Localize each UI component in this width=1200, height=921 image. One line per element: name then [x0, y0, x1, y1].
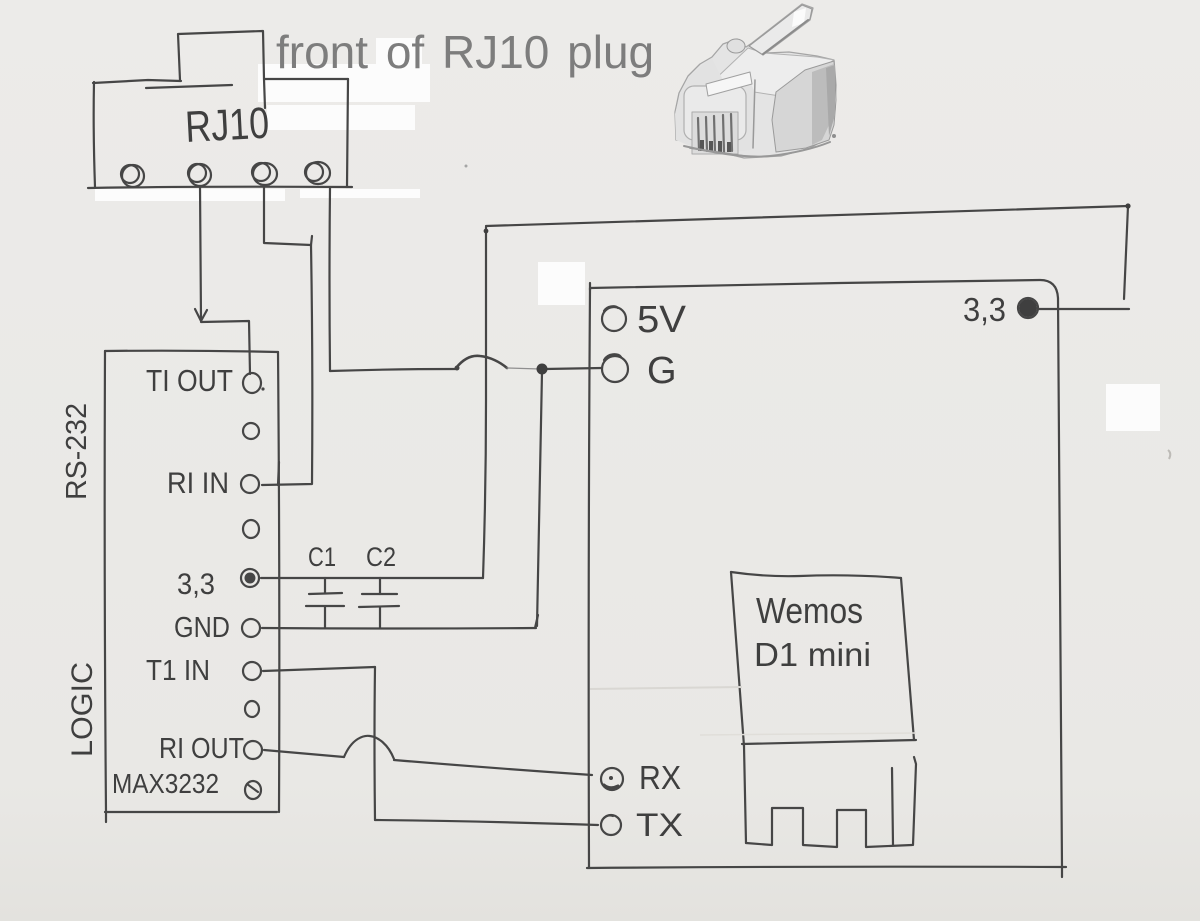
svg-text:RS-232: RS-232 [61, 403, 93, 500]
svg-text:C2: C2 [366, 542, 396, 572]
svg-text:TX: TX [636, 807, 683, 843]
svg-text:RJ10: RJ10 [184, 99, 270, 152]
svg-text:3,3: 3,3 [963, 291, 1006, 328]
svg-text:G: G [647, 350, 677, 392]
svg-text:C1: C1 [308, 542, 336, 572]
svg-text:T1 IN: T1 IN [146, 655, 210, 687]
svg-text:front of RJ10 plug: front of RJ10 plug [276, 26, 654, 78]
svg-text:TI OUT: TI OUT [146, 363, 233, 398]
svg-text:MAX3232: MAX3232 [112, 768, 219, 799]
svg-text:3,3: 3,3 [177, 568, 215, 601]
svg-text:GND: GND [174, 612, 230, 644]
svg-text:RI OUT: RI OUT [159, 733, 244, 765]
svg-text:RX: RX [639, 759, 681, 796]
svg-text:Wemos: Wemos [756, 590, 863, 631]
svg-text:LOGIC: LOGIC [66, 662, 99, 757]
svg-text:5V: 5V [637, 299, 687, 341]
svg-text:RI IN: RI IN [167, 467, 229, 500]
svg-text:D1 mini: D1 mini [754, 636, 871, 673]
